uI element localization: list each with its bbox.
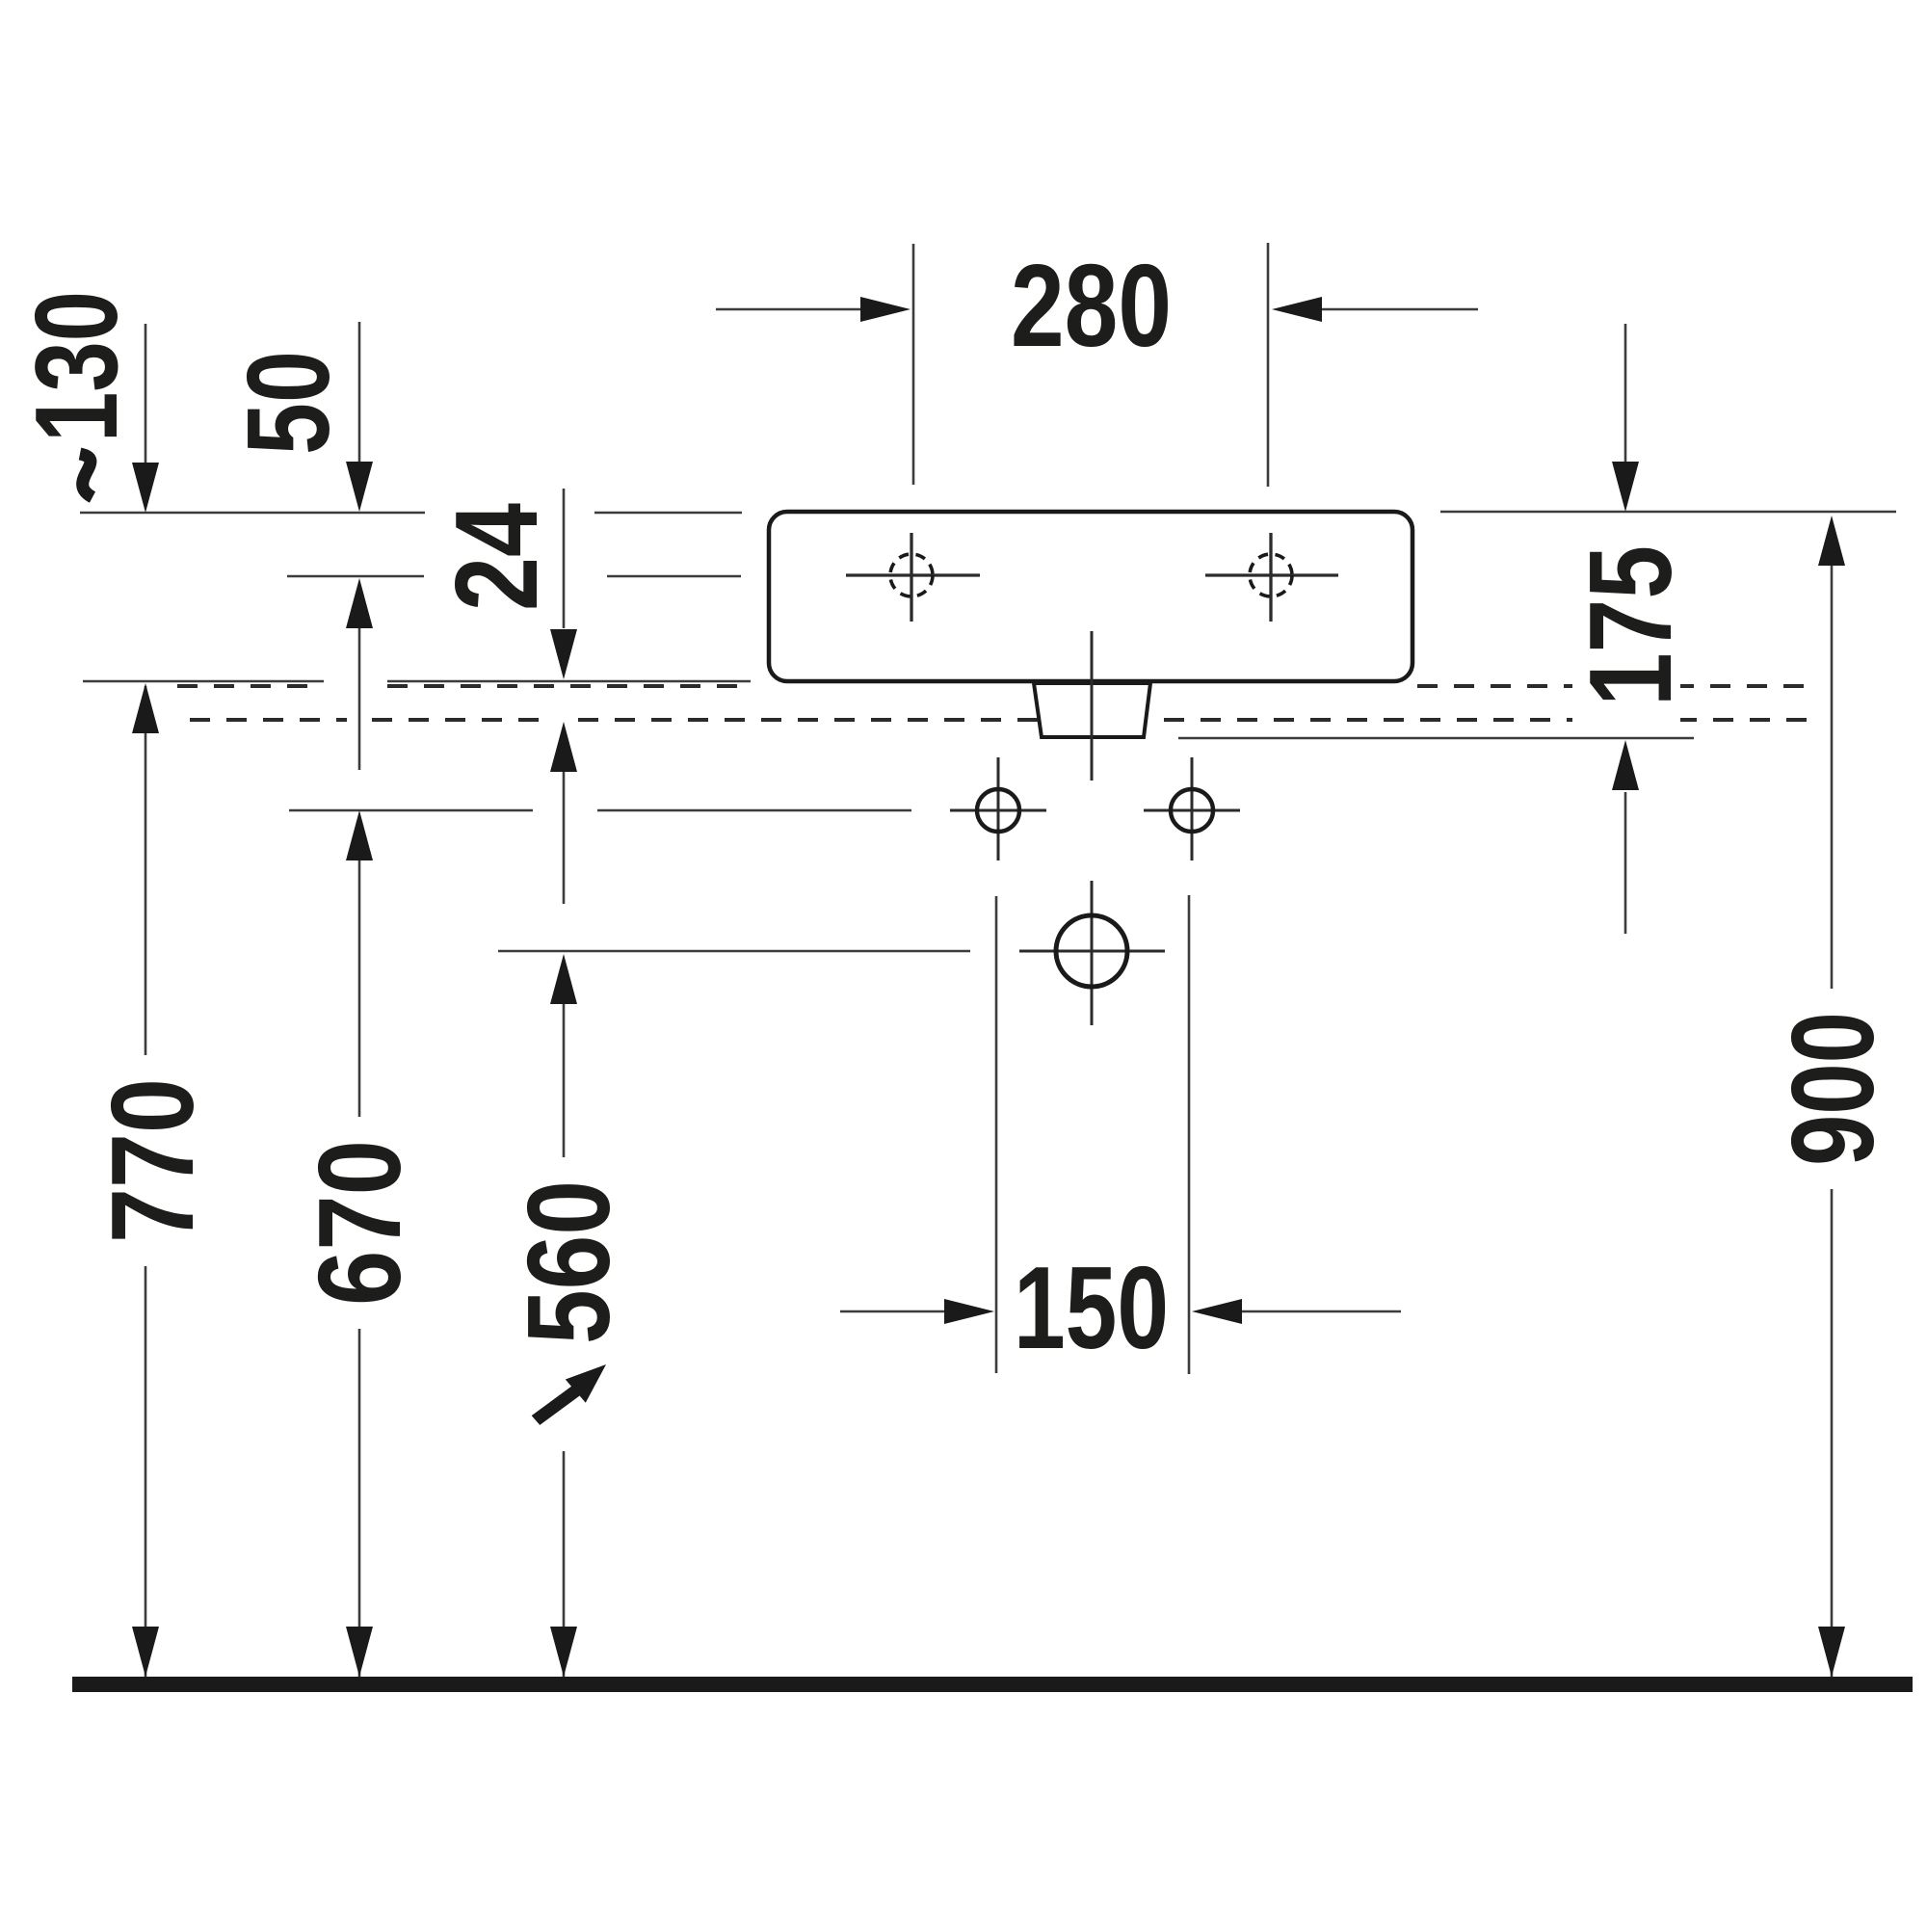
svg-text:280: 280	[1011, 240, 1172, 371]
svg-text:50: 50	[223, 351, 354, 455]
svg-text:130: 130	[11, 291, 142, 442]
svg-text:670: 670	[294, 1140, 425, 1306]
svg-text:560: 560	[503, 1180, 634, 1344]
svg-text:175: 175	[1565, 545, 1696, 706]
svg-text:24: 24	[431, 503, 562, 611]
svg-text:150: 150	[1014, 1242, 1169, 1373]
svg-text:900: 900	[1767, 1012, 1898, 1166]
svg-text:770: 770	[87, 1078, 218, 1243]
